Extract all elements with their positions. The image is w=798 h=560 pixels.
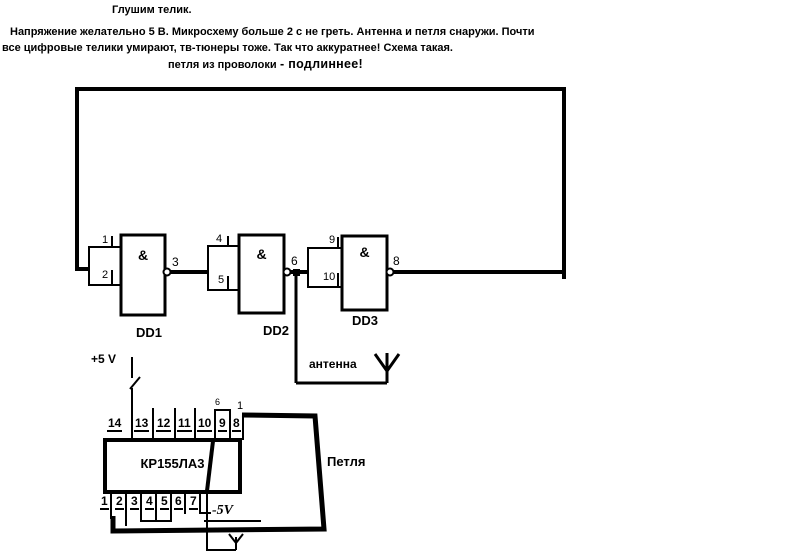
antenna-icon [375,353,399,383]
ic-bottom-pin-2: 2 [115,495,124,510]
dd2-label: DD2 [263,324,289,338]
dd1-and-symbol: & [121,248,165,263]
dd2-and-symbol: & [239,247,284,262]
ground-antenna-icon [229,534,243,550]
ic-top-pin-12: 12 [156,417,171,432]
minus5v-label: -5V [212,503,233,518]
schematic-canvas: Глушим телик. Напряжение желательно 5 В.… [0,0,798,560]
loop-label: Петля [327,455,365,469]
dd1-pin1-label: 1 [102,234,108,246]
ic-bottom-pin-7: 7 [189,495,198,510]
ic-bottom-pin-1: 1 [100,495,109,510]
ic-top-pin-9: 9 [218,417,227,432]
loop-pin1-label: 1 [237,400,243,412]
page-title: Глушим телик. [112,4,192,16]
ic-bottom-pin-4: 4 [145,495,154,510]
ic-top-pin-8: 8 [232,417,241,432]
pin9-jumper-label: 6 [215,398,220,408]
note-line1: Напряжение желательно 5 В. Микросхему бо… [10,26,535,38]
antenna-label: антенна [309,358,357,371]
loop-note: петля из проволоки [168,59,277,71]
inversion-bubble-dd1 [164,269,171,276]
dd3-pin8-label: 8 [393,255,400,268]
inversion-bubble-dd2 [284,269,291,276]
inversion-bubble-dd3 [387,269,394,276]
ic-top-pin-14: 14 [107,417,122,432]
ic-bottom-pin-3: 3 [130,495,139,510]
switch-icon [130,377,140,389]
dd3-pin10-label: 10 [323,271,335,283]
dd2-pin4-label: 4 [216,233,222,245]
note-line2: все цифровые телики умирают, тв-тюнеры т… [2,42,453,54]
dd1-pin2-label: 2 [102,269,108,281]
ic-bottom-pin-5: 5 [160,495,169,510]
dd3-and-symbol: & [342,245,387,260]
dd3-label: DD3 [352,314,378,328]
dd2-pin5-label: 5 [218,274,224,286]
loop-note-emphasis: - подлиннее! [280,58,363,72]
dd1-pin3-label: 3 [172,256,179,269]
ic-top-pin-11: 11 [177,417,192,432]
ic-name: КР155ЛА3 [105,457,240,471]
plus5v-label: +5 V [91,353,116,366]
ic-top-pin-10: 10 [197,417,212,432]
schematic-linework [0,0,798,560]
ic-top-pin-13: 13 [134,417,149,432]
dd1-label: DD1 [136,326,162,340]
dd3-pin9-label: 9 [329,234,335,246]
ic-bottom-pin-6: 6 [174,495,183,510]
dd2-pin6-label: 6 [291,255,298,268]
